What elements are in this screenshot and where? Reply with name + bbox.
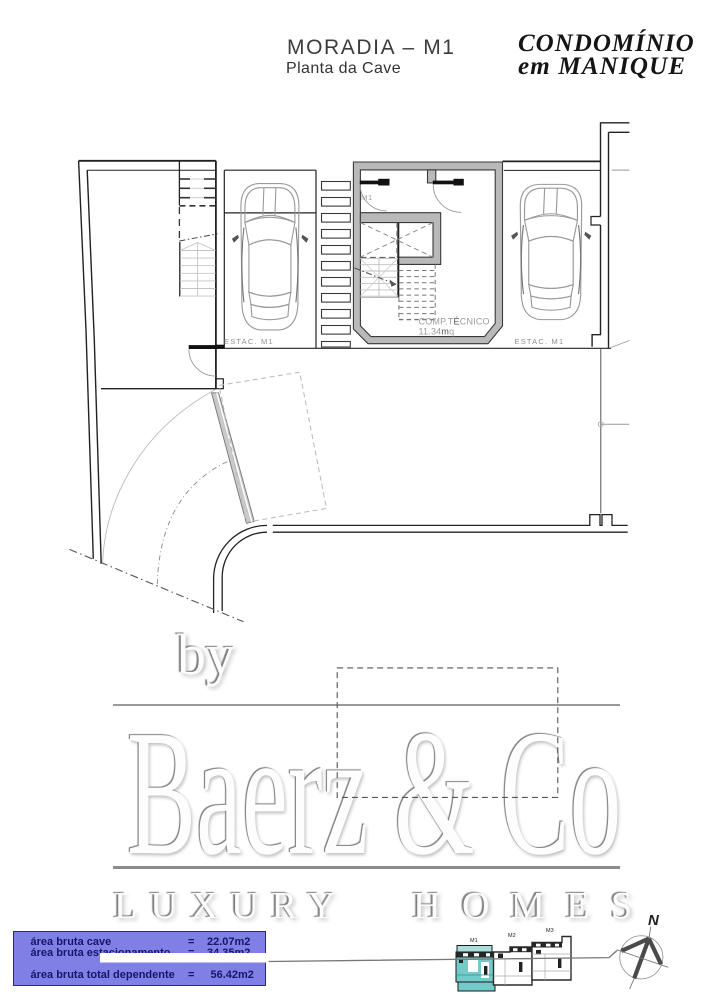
svg-text:M3: M3 [546,928,554,934]
svg-text:COMP.TÉCNICO: COMP.TÉCNICO [419,317,490,327]
svg-text:M1: M1 [361,193,373,202]
svg-text:ESTAC. M1: ESTAC. M1 [224,337,274,346]
svg-text:M1: M1 [470,938,478,944]
svg-text:11.34mq: 11.34mq [419,327,455,337]
svg-text:ESTAC. M1: ESTAC. M1 [515,337,565,346]
svg-text:M2: M2 [508,933,516,939]
svg-text:N: N [648,912,660,929]
